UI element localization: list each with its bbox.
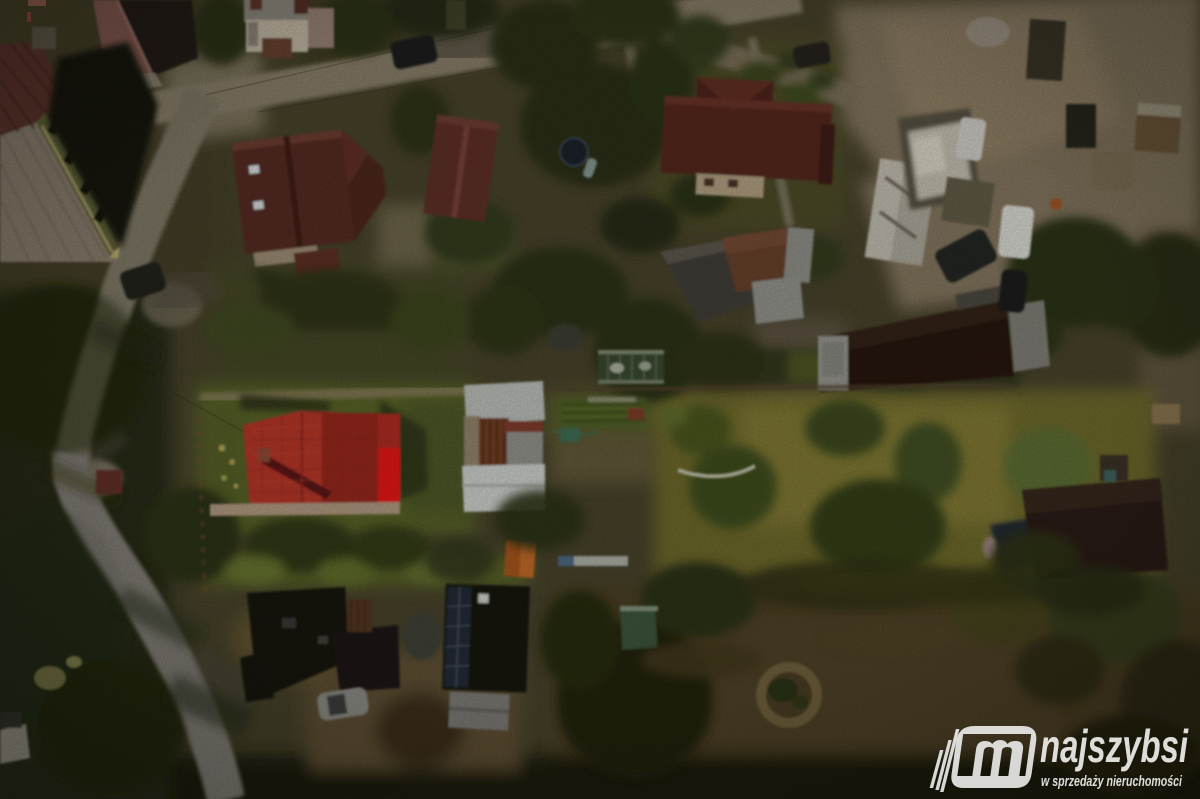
- svg-text:najszybsi: najszybsi: [1040, 720, 1189, 772]
- svg-text:w sprzedaży nieruchomości: w sprzedaży nieruchomości: [1041, 773, 1183, 790]
